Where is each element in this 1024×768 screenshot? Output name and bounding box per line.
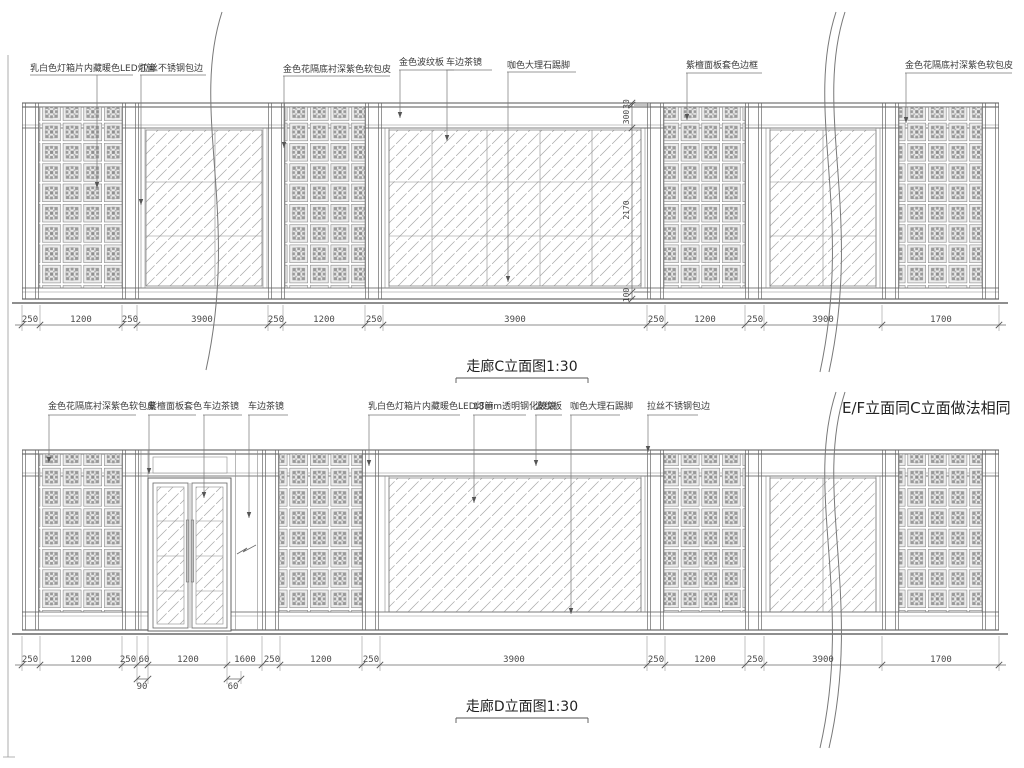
callout-led-lightbox-top: 乳白色灯箱片内藏暖色LED灯管 <box>30 64 156 75</box>
cad-elevation-sheet: 乳白色灯箱片内藏暖色LED灯管 拉丝不锈钢包边 金色花隔底衬深紫色软包皮 金色波… <box>0 0 1024 768</box>
callout-wave-board-bottom: 波纹板 <box>535 402 562 413</box>
dim-bottom-4: 60 <box>122 655 166 665</box>
callout-marble-skirting-top: 咖色大理石踢脚 <box>507 61 570 72</box>
note-ef-same-as-c: E/F立面同C立面做法相同 <box>842 399 1011 417</box>
callout-beveled-mirror-2: 车边茶镜 <box>248 402 284 413</box>
dim-bottom-5: 1200 <box>166 655 210 665</box>
dim-bottom-sub-90: 90 <box>120 682 164 692</box>
dim-bottom-sub-60: 60 <box>211 682 255 692</box>
dim-bottom-12: 1200 <box>683 655 727 665</box>
callout-rosewood-frame-top: 紫檀面板套色边框 <box>686 61 758 72</box>
dim-top-9: 250 <box>634 315 678 325</box>
dim-bottom-13: 250 <box>733 655 777 665</box>
dim-top-11: 250 <box>733 315 777 325</box>
callout-stainless-edge-top: 拉丝不锈钢包边 <box>140 64 203 75</box>
callout-gold-lattice-bottom: 金色花隔底衬深紫色软包皮 <box>48 402 156 413</box>
callout-gold-lattice-top-right: 金色花隔底衬深紫色软包皮 <box>905 61 1013 72</box>
callout-gold-wave-board: 金色波纹板 <box>399 58 444 69</box>
dim-bottom-2: 1200 <box>59 655 103 665</box>
dim-bottom-9: 250 <box>349 655 393 665</box>
dim-vertical-2170: 2170 <box>622 192 632 228</box>
dim-top-3: 250 <box>108 315 152 325</box>
dim-vertical-300: 300 <box>622 99 632 135</box>
dim-vertical-100: 100 <box>622 277 632 313</box>
dim-bottom-15: 1700 <box>919 655 963 665</box>
title-elevation-c: 走廊C立面图1:30 <box>442 359 602 376</box>
elevation-drawing-svg <box>0 0 1024 768</box>
callout-rosewood-panel-bottom: 紫檀面板套色 <box>148 402 202 413</box>
dim-bottom-10: 3900 <box>492 655 536 665</box>
dim-top-4: 3900 <box>180 315 224 325</box>
dim-top-10: 1200 <box>683 315 727 325</box>
dim-top-1: 250 <box>8 315 52 325</box>
callout-gold-lattice-top-left: 金色花隔底衬深紫色软包皮 <box>283 65 391 76</box>
callout-beveled-mirror-1: 车边茶镜 <box>203 402 239 413</box>
dim-top-2: 1200 <box>59 315 103 325</box>
title-elevation-d: 走廊D立面图1:30 <box>442 699 602 716</box>
dim-top-12: 3900 <box>801 315 845 325</box>
dim-bottom-8: 1200 <box>299 655 343 665</box>
callout-marble-skirting-bottom: 咖色大理石踢脚 <box>570 402 633 413</box>
callout-stainless-edge-bottom: 拉丝不锈钢包边 <box>647 402 710 413</box>
dim-bottom-1: 250 <box>8 655 52 665</box>
dim-top-5: 250 <box>254 315 298 325</box>
dim-bottom-14: 3900 <box>801 655 845 665</box>
callout-beveled-mirror-top: 车边茶镜 <box>446 58 482 69</box>
dim-bottom-11: 250 <box>634 655 678 665</box>
dim-top-8: 3900 <box>493 315 537 325</box>
dim-top-13: 1700 <box>919 315 963 325</box>
dim-bottom-7: 250 <box>250 655 294 665</box>
dim-top-6: 1200 <box>302 315 346 325</box>
dim-top-7: 250 <box>352 315 396 325</box>
